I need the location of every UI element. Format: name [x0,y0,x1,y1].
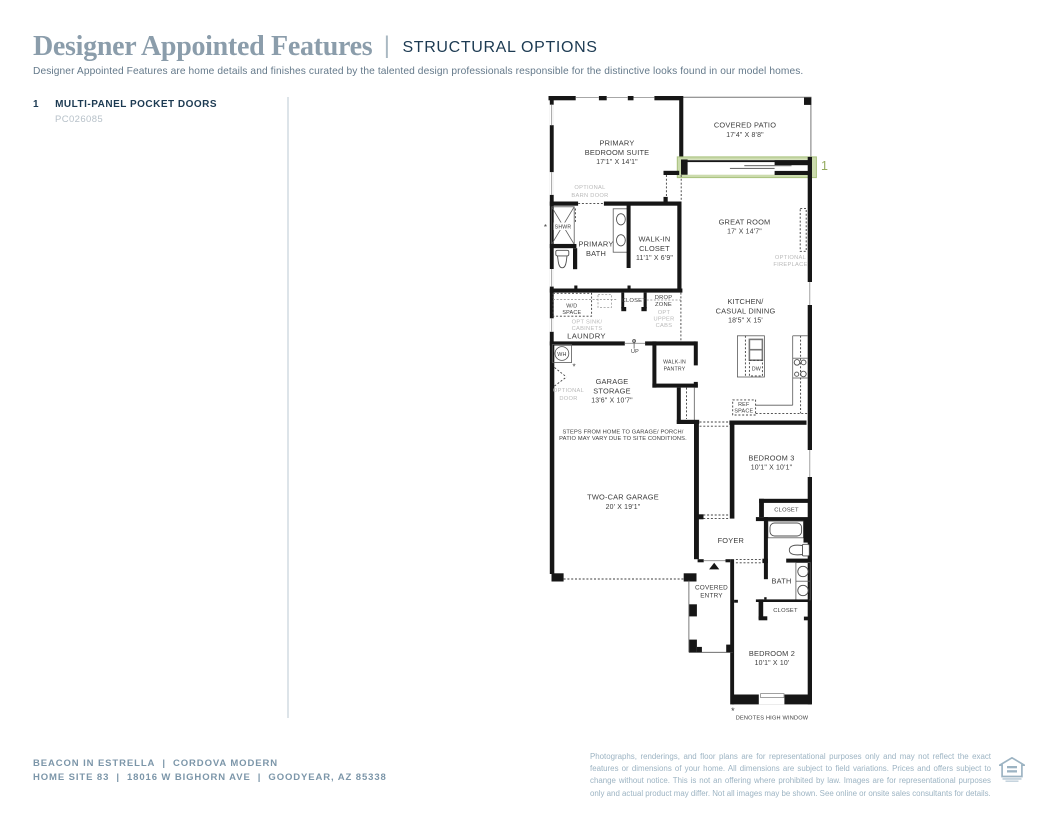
svg-text:DW: DW [752,367,762,373]
svg-text:CLOSET: CLOSET [774,508,799,514]
svg-text:OPT: OPT [658,310,671,316]
svg-text:13'6" X 10'7": 13'6" X 10'7" [591,398,633,405]
svg-text:DENOTES HIGH WINDOW: DENOTES HIGH WINDOW [736,716,809,722]
svg-text:PRIMARY: PRIMARY [579,240,614,249]
svg-text:WH: WH [557,352,566,358]
svg-text:LAUNDRY: LAUNDRY [567,332,606,341]
svg-text:COVERED PATIO: COVERED PATIO [714,121,776,130]
svg-text:SHWR: SHWR [555,225,572,231]
svg-text:17'4" X 8'8": 17'4" X 8'8" [726,132,764,139]
svg-text:11'1" X 6'9": 11'1" X 6'9" [636,255,673,262]
svg-text:CLOSET: CLOSET [639,244,670,253]
svg-text:DOOR: DOOR [559,396,577,402]
svg-text:UPPER: UPPER [653,317,674,323]
svg-text:BATH: BATH [772,577,792,586]
svg-text:10'1" X 10': 10'1" X 10' [755,660,790,667]
svg-text:COVERED: COVERED [695,585,728,592]
svg-text:OPT SINK/: OPT SINK/ [572,320,603,326]
svg-text:17'1" X 14'1": 17'1" X 14'1" [596,159,638,166]
svg-text:PANTRY: PANTRY [664,367,686,373]
svg-text:CABS: CABS [656,323,673,329]
svg-text:CLOSET: CLOSET [622,298,647,304]
svg-text:WALK-IN: WALK-IN [639,235,671,244]
svg-text:*: * [573,363,576,372]
svg-text:STEPS FROM HOME TO GARAGE/ POR: STEPS FROM HOME TO GARAGE/ PORCH/ [562,430,683,436]
svg-text:17' X 14'7": 17' X 14'7" [727,229,762,236]
svg-text:*: * [731,706,735,716]
svg-text:STORAGE: STORAGE [593,387,630,396]
svg-text:OPTIONAL: OPTIONAL [553,388,584,394]
svg-text:UP: UP [631,349,639,355]
svg-text:GREAT ROOM: GREAT ROOM [719,218,771,227]
svg-text:OPTIONAL: OPTIONAL [574,185,605,191]
svg-text:BEDROOM SUITE: BEDROOM SUITE [585,148,650,157]
svg-text:KITCHEN/: KITCHEN/ [727,297,764,306]
svg-text:W/D: W/D [566,304,577,310]
svg-text:CASUAL DINING: CASUAL DINING [716,307,776,316]
svg-text:*: * [544,223,547,232]
svg-text:18'5" X 15': 18'5" X 15' [728,318,763,325]
svg-text:GARAGE: GARAGE [596,377,629,386]
svg-text:ENTRY: ENTRY [700,593,723,600]
svg-text:CLOSET: CLOSET [773,608,798,614]
svg-text:20' X 19'1": 20' X 19'1" [606,504,641,511]
svg-text:TWO-CAR GARAGE: TWO-CAR GARAGE [587,493,659,502]
svg-text:OPTIONAL: OPTIONAL [775,255,806,261]
svg-text:FOYER: FOYER [718,536,744,545]
svg-text:SPACE: SPACE [734,409,753,415]
svg-text:10'1" X 10'1": 10'1" X 10'1" [751,465,793,472]
svg-text:WALK-IN: WALK-IN [663,360,686,366]
svg-text:SPACE: SPACE [562,310,581,316]
svg-text:REF: REF [738,402,750,408]
svg-text:1: 1 [821,159,828,173]
svg-text:FIREPLACE: FIREPLACE [773,262,807,268]
svg-text:BARN DOOR: BARN DOOR [571,193,608,199]
svg-text:ZONE: ZONE [655,302,672,308]
svg-text:BEDROOM 3: BEDROOM 3 [748,454,794,463]
svg-text:BATH: BATH [586,249,606,258]
svg-text:PATIO MAY VARY DUE TO SITE CON: PATIO MAY VARY DUE TO SITE CONDITIONS. [559,436,687,442]
svg-text:BEDROOM 2: BEDROOM 2 [749,649,795,658]
svg-text:PRIMARY: PRIMARY [600,139,635,148]
